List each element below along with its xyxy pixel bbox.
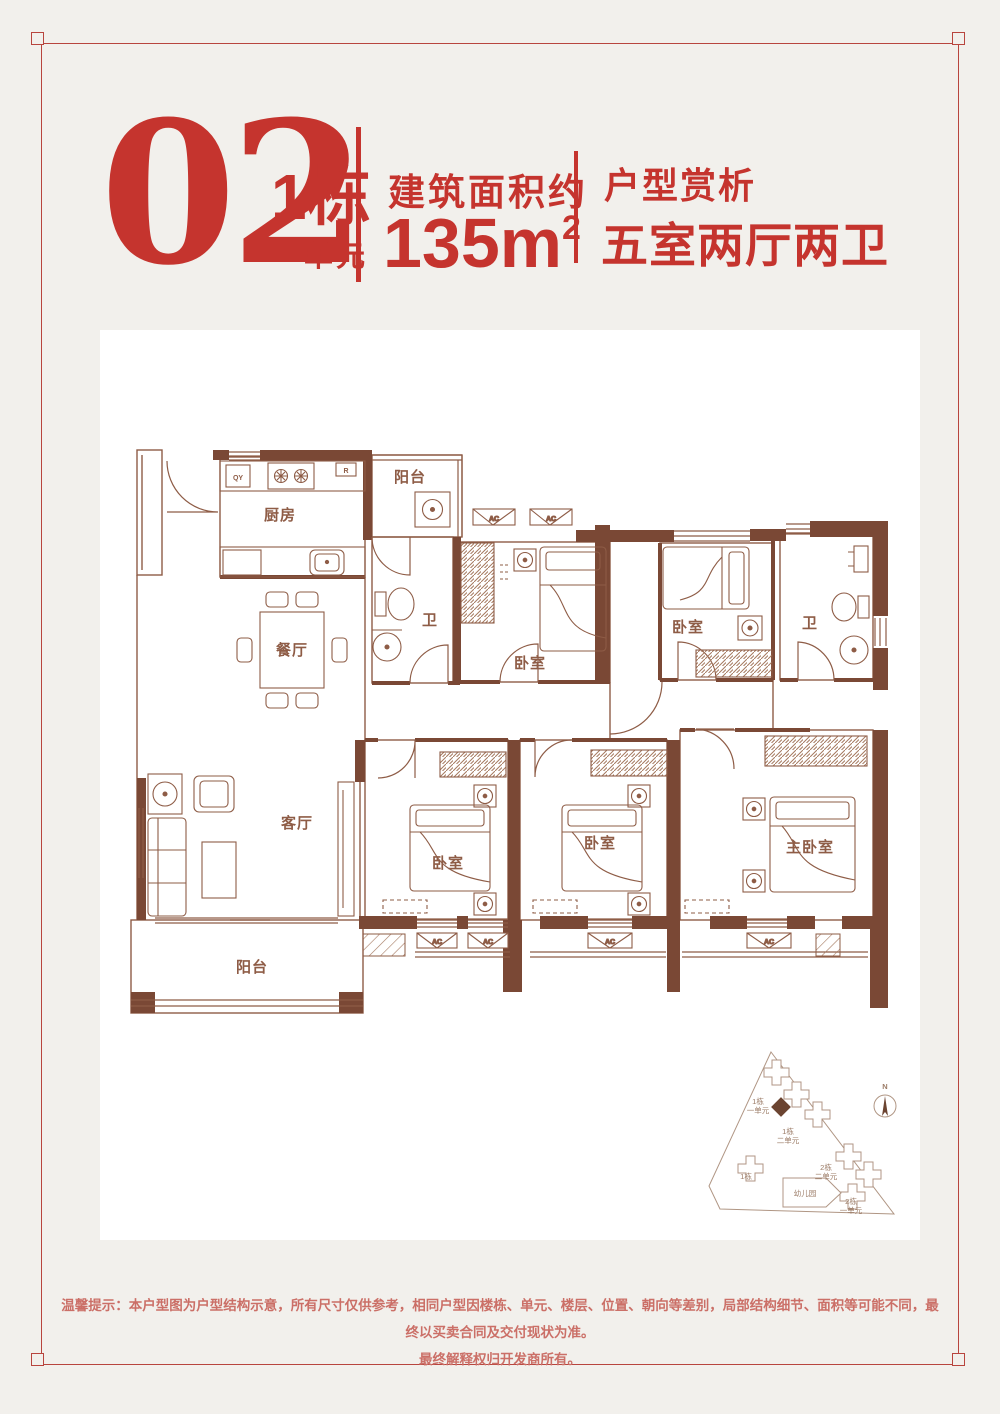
master-bedroom-group: 主卧室 [685,736,867,913]
floorplan-card: AC AC AC AC AC AC QY R 厨房 [100,330,920,1240]
area-superscript: 2 [562,209,581,247]
disclaimer-line1: 温馨提示：本户型图为户型结构示意，所有尺寸仅供参考，相同户型因楼栋、单元、楼层、… [60,1292,940,1346]
unit-label: 一单元 [272,233,368,275]
bedroom-top-right-label: 卧室 [672,618,704,636]
site-b1u2-line1: 1栋 [782,1126,794,1136]
master-bedroom-label: 主卧室 [786,838,834,856]
ac-label: AC [432,939,442,946]
bedroom-bottom-1-label: 卧室 [432,854,464,872]
left-bath-group [372,588,414,661]
ac-label: AC [546,516,556,523]
bedroom-top-mid-group: 卧室 [461,543,606,672]
dining-label: 餐厅 [276,641,308,659]
bedroom-bottom-1-group: 卧室 [383,752,506,915]
ac-label: AC [605,939,615,946]
site-b1u1-line1: 1栋 [752,1096,764,1106]
right-bath-group [832,546,869,664]
area-number: 135m [383,204,562,282]
header-divider-2 [574,151,578,263]
frame-corner-bottom-left [31,1353,44,1366]
living-group [148,774,354,916]
site-b2u2-line1: 2栋 [820,1162,832,1172]
site-b2u1-line2: 一单元 [840,1205,863,1215]
frame-corner-bottom-right [952,1353,965,1366]
kitchen-qy-tag: QY [233,475,243,482]
compass-north-label: N [882,1082,887,1091]
top-balcony-label: 阳台 [394,468,426,486]
site-b1: 1栋 [740,1171,752,1181]
ac-label: AC [764,939,774,946]
bottom-balcony-label: 阳台 [236,958,268,976]
floorplan-svg: AC AC AC AC AC AC QY R 厨房 [110,400,910,1050]
kitchen-label: 厨房 [264,506,296,524]
layout-description: 五室两厅两卫 [601,207,889,276]
disclaimer-line2: 最终解释权归开发商所有。 [60,1346,940,1373]
site-b1u1-line2: 一单元 [747,1105,770,1115]
site-b1u2-line2: 二单元 [777,1135,800,1145]
top-balcony-group [415,492,450,527]
kitchen-r-tag: R [343,468,348,475]
bedroom-bottom-2-group: 卧室 [533,750,667,915]
right-bath-label: 卫 [802,615,818,632]
siteplan-svg: 1栋 一单元 1栋 二单元 1栋 2栋 二单元 幼儿园 2栋 一单元 N [708,1046,913,1236]
bedroom-top-right-group: 卧室 [663,547,772,677]
area-value: 135m2 [383,203,581,283]
ac-label: AC [489,516,499,523]
bedroom-bottom-2-label: 卧室 [584,834,616,852]
living-label: 客厅 [280,814,313,832]
header-divider-1 [356,127,361,282]
disclaimer: 温馨提示：本户型图为户型结构示意，所有尺寸仅供参考，相同户型因楼栋、单元、楼层、… [60,1292,940,1373]
left-bath-label: 卫 [422,612,438,629]
compass: N [874,1082,896,1117]
review-label: 户型赏析 [604,157,756,209]
ac-label: AC [483,939,493,946]
frame-corner-top-right [952,32,965,45]
page: { "colors":{ "background":"#f2f0ec","car… [0,0,1000,1414]
site-b2u1-line1: 2栋 [845,1196,857,1206]
site-kindergarten: 幼儿园 [794,1188,817,1198]
bedroom-top-mid-label: 卧室 [514,654,546,672]
frame-corner-top-left [31,32,44,45]
site-b2u2-line2: 二单元 [815,1171,838,1181]
